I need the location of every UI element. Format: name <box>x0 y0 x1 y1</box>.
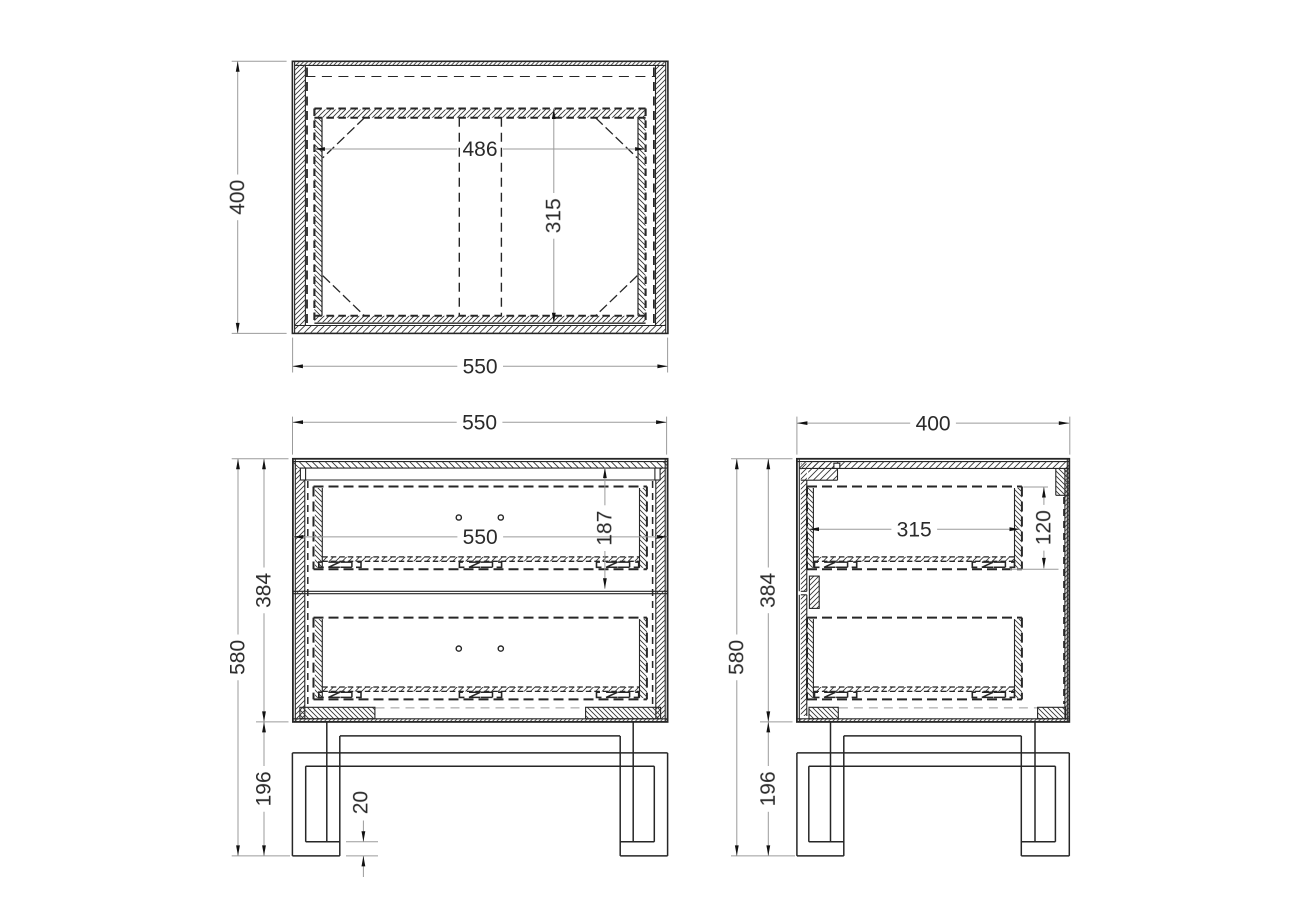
svg-text:400: 400 <box>916 412 951 435</box>
svg-text:315: 315 <box>897 518 932 541</box>
svg-text:550: 550 <box>463 356 498 379</box>
svg-text:384: 384 <box>757 573 780 608</box>
svg-text:187: 187 <box>593 511 616 546</box>
svg-text:580: 580 <box>725 640 748 675</box>
svg-text:196: 196 <box>757 771 780 806</box>
svg-text:486: 486 <box>462 138 497 161</box>
svg-text:315: 315 <box>542 198 565 233</box>
svg-text:120: 120 <box>1032 510 1055 545</box>
svg-text:580: 580 <box>227 640 250 675</box>
svg-text:384: 384 <box>253 573 276 608</box>
svg-text:20: 20 <box>349 791 372 814</box>
svg-text:550: 550 <box>463 526 498 549</box>
svg-text:550: 550 <box>462 411 497 434</box>
svg-text:400: 400 <box>226 180 249 215</box>
svg-text:196: 196 <box>253 771 276 806</box>
